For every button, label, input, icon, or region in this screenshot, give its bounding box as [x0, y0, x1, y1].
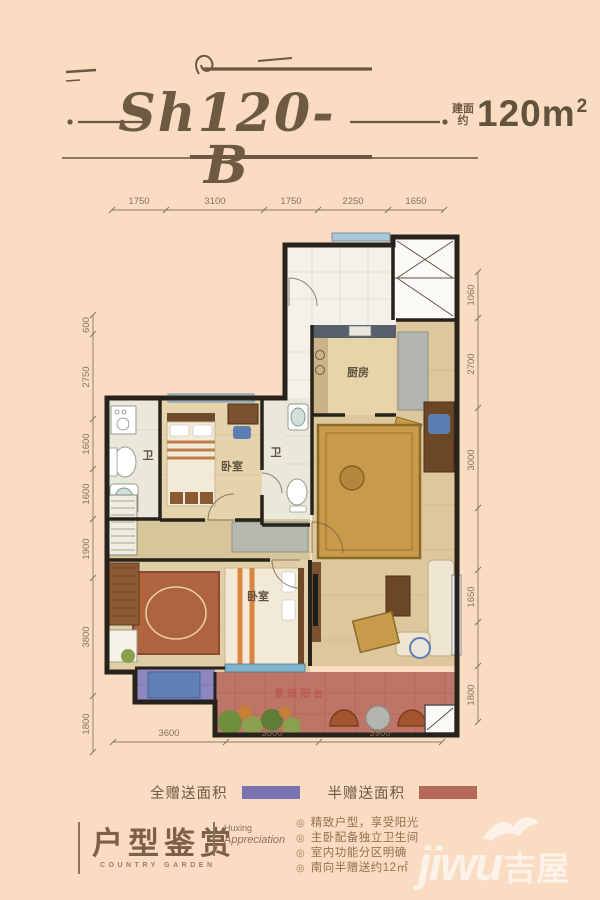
- bullet-text: 精致户型，享受阳光: [311, 814, 419, 830]
- dining-chair-blue: [428, 414, 450, 434]
- dim-label: 3100: [204, 196, 225, 207]
- side-table: [410, 638, 430, 658]
- legend-label-full-gift: 全赠送面积: [150, 782, 228, 803]
- legend-label-half-gift: 半赠送面积: [328, 782, 406, 803]
- selling-point: ◎精致户型，享受阳光: [296, 814, 419, 829]
- dim-label: 1650: [405, 196, 426, 207]
- room-label-kitchen: 厨房: [347, 365, 369, 379]
- bed1-pillow: [193, 425, 212, 436]
- bedroom2-window: [225, 664, 305, 672]
- ottoman: [340, 466, 364, 490]
- terrace-table: [366, 706, 390, 730]
- dim-label: 1650: [466, 586, 477, 607]
- dim-label: 3600: [158, 728, 179, 739]
- bullet-icon: ◎: [296, 848, 305, 859]
- floor-plan: 卫 卧室 卫 厨房 卧室 景观阳台 1750 3100 1750 2250 16…: [0, 170, 600, 790]
- kitchen-sink: [349, 326, 371, 336]
- living-rug: [318, 425, 420, 558]
- room-label-bath1: 卫: [143, 449, 154, 462]
- dims-left: 600 2750 1600 1600 1900 3800 1800: [81, 312, 96, 755]
- master-pillow: [282, 572, 295, 592]
- footer-caption-line1: Huxing: [224, 822, 285, 834]
- dim-label: 1750: [280, 196, 301, 207]
- tv-screen: [313, 574, 318, 626]
- bullet-text: 主卧配备独立卫生间: [311, 829, 419, 845]
- area-superscript: 2: [577, 96, 589, 117]
- footer-divider-left: [78, 822, 80, 874]
- selling-points: ◎精致户型，享受阳光 ◎主卧配备独立卫生间 ◎室内功能分区明确 ◎南向半赠送约1…: [296, 814, 419, 874]
- bullet-text: 室内功能分区明确: [311, 844, 407, 860]
- selling-point: ◎主卧配备独立卫生间: [296, 829, 419, 844]
- dim-label: 1800: [81, 713, 92, 734]
- entry-window: [332, 233, 390, 241]
- dim-label: 1800: [466, 684, 477, 705]
- desk-chair-blue: [233, 426, 251, 439]
- bird-icon: [480, 812, 542, 846]
- dim-label: 3800: [81, 626, 92, 647]
- title-dash-dot: [67, 119, 72, 124]
- bed1-pillow: [170, 425, 189, 436]
- dims-right: 1060 2700 3000 1650 1800: [466, 269, 481, 725]
- dim-label: 3900: [369, 728, 390, 739]
- dim-label: 2250: [342, 196, 363, 207]
- dim-label: 1600: [81, 483, 92, 504]
- room-label-bedroom2: 卧室: [247, 589, 269, 603]
- flourish-tick: [66, 70, 96, 72]
- toilet2: [287, 479, 307, 505]
- entry-floor: [285, 245, 396, 325]
- dining-table: [424, 402, 454, 472]
- watermark-text-en: jiwu: [418, 836, 501, 891]
- selling-point: ◎室内功能分区明确: [296, 844, 419, 859]
- bullet-icon: ◎: [296, 818, 305, 829]
- legend-swatch-full-gift: [242, 786, 300, 799]
- room-label-terrace: 景观阳台: [274, 687, 326, 700]
- bed1-bench: [185, 492, 198, 504]
- desk: [228, 404, 258, 424]
- bed1-headboard: [167, 413, 215, 422]
- footer-caption: Huxing Appreciation: [224, 822, 285, 846]
- selling-point: ◎南向半赠送约12㎡: [296, 859, 419, 874]
- bullet-icon: ◎: [296, 863, 305, 874]
- dims-top: 1750 3100 1750 2250 1650: [109, 196, 447, 213]
- bed1-bench: [170, 492, 183, 504]
- dim-label: 3000: [466, 449, 477, 470]
- bed-bedroom1: [167, 413, 215, 506]
- bullet-text: 南向半赠送约12㎡: [311, 859, 409, 875]
- room-label-bath2: 卫: [271, 446, 282, 459]
- closet-hatched: [109, 495, 137, 555]
- area-approx-label: 建面 约: [452, 103, 474, 127]
- footer-divider-mid: [213, 822, 215, 856]
- dim-label: 3000: [261, 728, 282, 739]
- dim-label: 2750: [81, 366, 92, 387]
- footer-subtitle: COUNTRY GARDEN: [100, 862, 216, 869]
- master-pillow: [282, 600, 295, 620]
- room-label-bedroom1: 卧室: [221, 459, 243, 473]
- dim-label: 1600: [81, 433, 92, 454]
- dim-label: 1900: [81, 538, 92, 559]
- legend-swatch-half-gift: [419, 786, 477, 799]
- watermark-text-cn: 吉屋: [503, 842, 569, 890]
- legend: 全赠送面积 半赠送面积: [150, 782, 477, 803]
- area-value: 120m2: [477, 93, 588, 135]
- plant-pot: [121, 649, 135, 663]
- sofa: [428, 560, 454, 656]
- flourish-tick: [258, 58, 292, 61]
- master-headboard: [298, 568, 304, 668]
- dim-label: 2700: [466, 353, 477, 374]
- flourish-tick: [66, 80, 80, 81]
- bullet-icon: ◎: [296, 833, 305, 844]
- coffee-table: [386, 576, 410, 616]
- dim-label: 600: [81, 317, 92, 333]
- dim-label: 1060: [466, 284, 477, 305]
- area-number: 120m: [477, 93, 576, 134]
- title-dash-dot: [442, 119, 447, 124]
- balcony-mat: [148, 672, 200, 698]
- bed1-bench: [200, 492, 213, 504]
- kitchen-cabinet: [312, 338, 328, 415]
- jiwu-watermark: jiwu 吉屋: [418, 836, 569, 891]
- dim-label: 1750: [128, 196, 149, 207]
- flourish-curl: [196, 56, 212, 74]
- fridge-cabinet: [398, 332, 428, 410]
- footer-caption-line2: Appreciation: [224, 834, 285, 846]
